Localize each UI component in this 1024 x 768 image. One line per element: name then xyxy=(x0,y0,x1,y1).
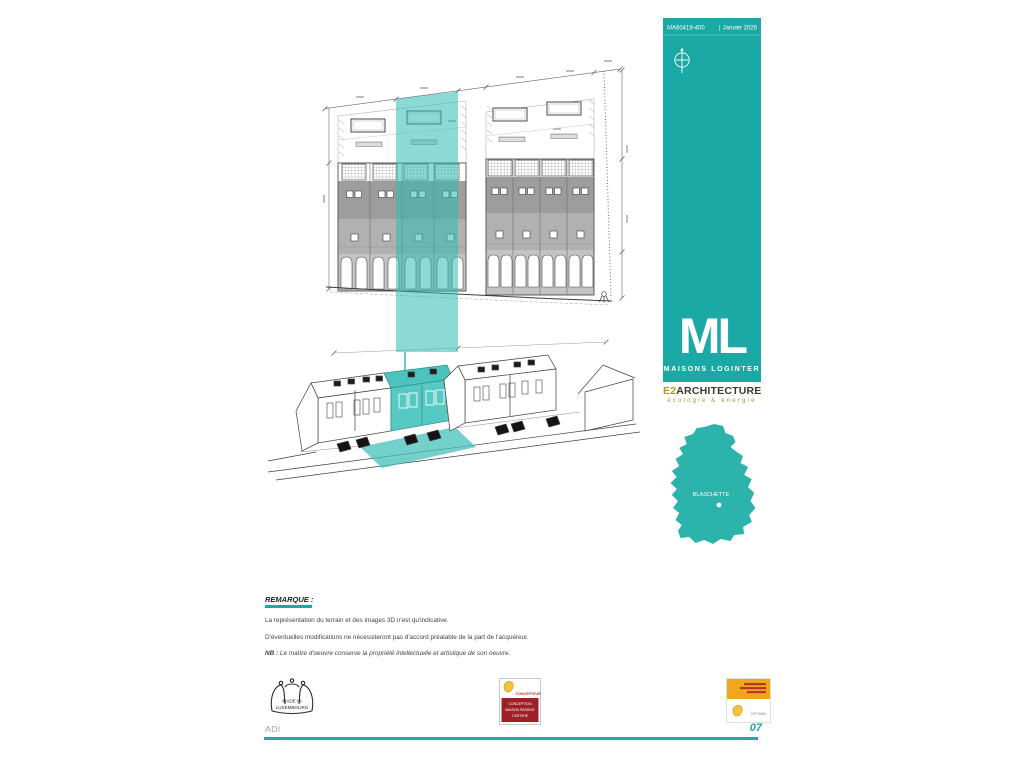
nb-prefix: NB : xyxy=(265,650,278,657)
footer-page-number: 07 xyxy=(742,722,762,734)
drawing-sheet: MA60419-400 | Janvier 2026 ML MAISONS LO… xyxy=(0,0,1024,768)
passive-house-badge: CONCEPTEUR CONCEPTION MAISON PASSIVE CER… xyxy=(499,678,541,725)
skylight xyxy=(493,108,527,121)
remark-line-1: La représentation du terrain et des imag… xyxy=(265,617,695,624)
artisan-label: ARTISAN xyxy=(750,712,766,716)
skylight xyxy=(547,102,581,115)
luxembourg-map: BLASCHETTE xyxy=(660,418,770,550)
sidebar: MA60419-400 | Janvier 2026 ML MAISONS LO… xyxy=(663,18,761,382)
elevation-right-block xyxy=(486,159,594,295)
footer-initials: ADI xyxy=(265,724,281,734)
architect-prefix: E2 xyxy=(663,385,676,397)
map-location-label: BLASCHETTE xyxy=(693,492,730,498)
made-in-luxembourg-badge: MADE IN LUXEMBOURG xyxy=(264,677,320,723)
made-in-label-1: MADE IN xyxy=(282,699,301,704)
map-location-dot xyxy=(717,503,722,508)
remark-line-nb: NB : Le maître d'oeuvre conserve la prop… xyxy=(265,650,695,657)
architect-name: E2ARCHITECTURE xyxy=(663,385,761,397)
remark-line-2: D'éventuelles modifications ne nécessite… xyxy=(265,634,695,641)
made-in-label-2: LUXEMBOURG xyxy=(276,705,309,710)
remarks-title: REMARQUE : xyxy=(265,595,695,604)
company-logo: ML xyxy=(663,310,761,362)
passive-label-1: CONCEPTION xyxy=(508,702,532,706)
remarks-underline xyxy=(265,605,312,608)
passive-label-3: CERTIFIÉ xyxy=(512,713,529,718)
architect-branding: E2ARCHITECTURE écologie & énergie xyxy=(663,385,761,404)
highlighted-unit-overlay xyxy=(396,92,458,353)
map-shape xyxy=(671,424,756,544)
site-plan-roofs xyxy=(338,99,594,163)
sketch-3d xyxy=(268,355,640,480)
nb-text: Le maître d'oeuvre conserve la propriété… xyxy=(280,650,510,657)
passive-role-label: CONCEPTEUR xyxy=(516,692,542,696)
sketch-3d-highlighted-house xyxy=(384,365,453,431)
architect-suffix: ARCHITECTURE xyxy=(676,385,761,397)
sheet-date: Janvier 2026 xyxy=(723,26,758,32)
architectural-drawing xyxy=(250,50,670,490)
skylight xyxy=(351,119,385,132)
passive-label-2: MAISON PASSIVE xyxy=(505,708,535,712)
sheet-reference: MA60419-400 xyxy=(667,26,705,32)
architect-tagline: écologie & énergie xyxy=(663,398,761,404)
artisan-badge: ARTISAN xyxy=(726,678,771,723)
company-name: MAISONS LOGINTER xyxy=(663,366,761,373)
remarks-section: REMARQUE : La représentation du terrain … xyxy=(265,595,695,657)
footer-rule xyxy=(264,737,758,740)
